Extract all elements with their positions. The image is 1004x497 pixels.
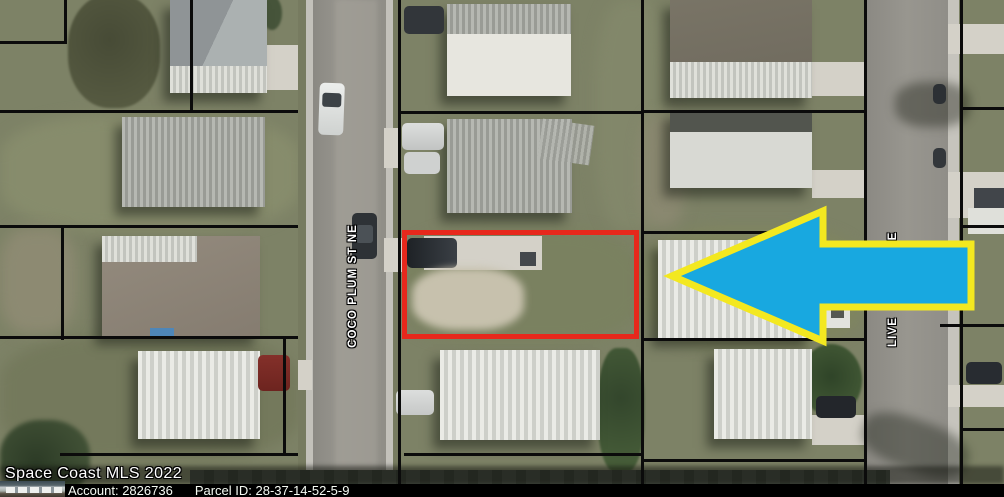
pointer-arrow	[0, 0, 1004, 497]
aerial-parcel-map: COCO PLUM ST NE LIVE E Space Coast MLS 2…	[0, 0, 1004, 497]
thumbnail-homes	[6, 487, 62, 493]
account-number: Account: 2826736	[68, 483, 173, 497]
footer-text: Account: 2826736Parcel ID: 28-37-14-52-5…	[68, 483, 349, 497]
parcel-id: Parcel ID: 28-37-14-52-5-9	[195, 483, 350, 497]
pointer-arrow-shape	[672, 211, 971, 341]
thumbnail-photo	[0, 481, 65, 497]
